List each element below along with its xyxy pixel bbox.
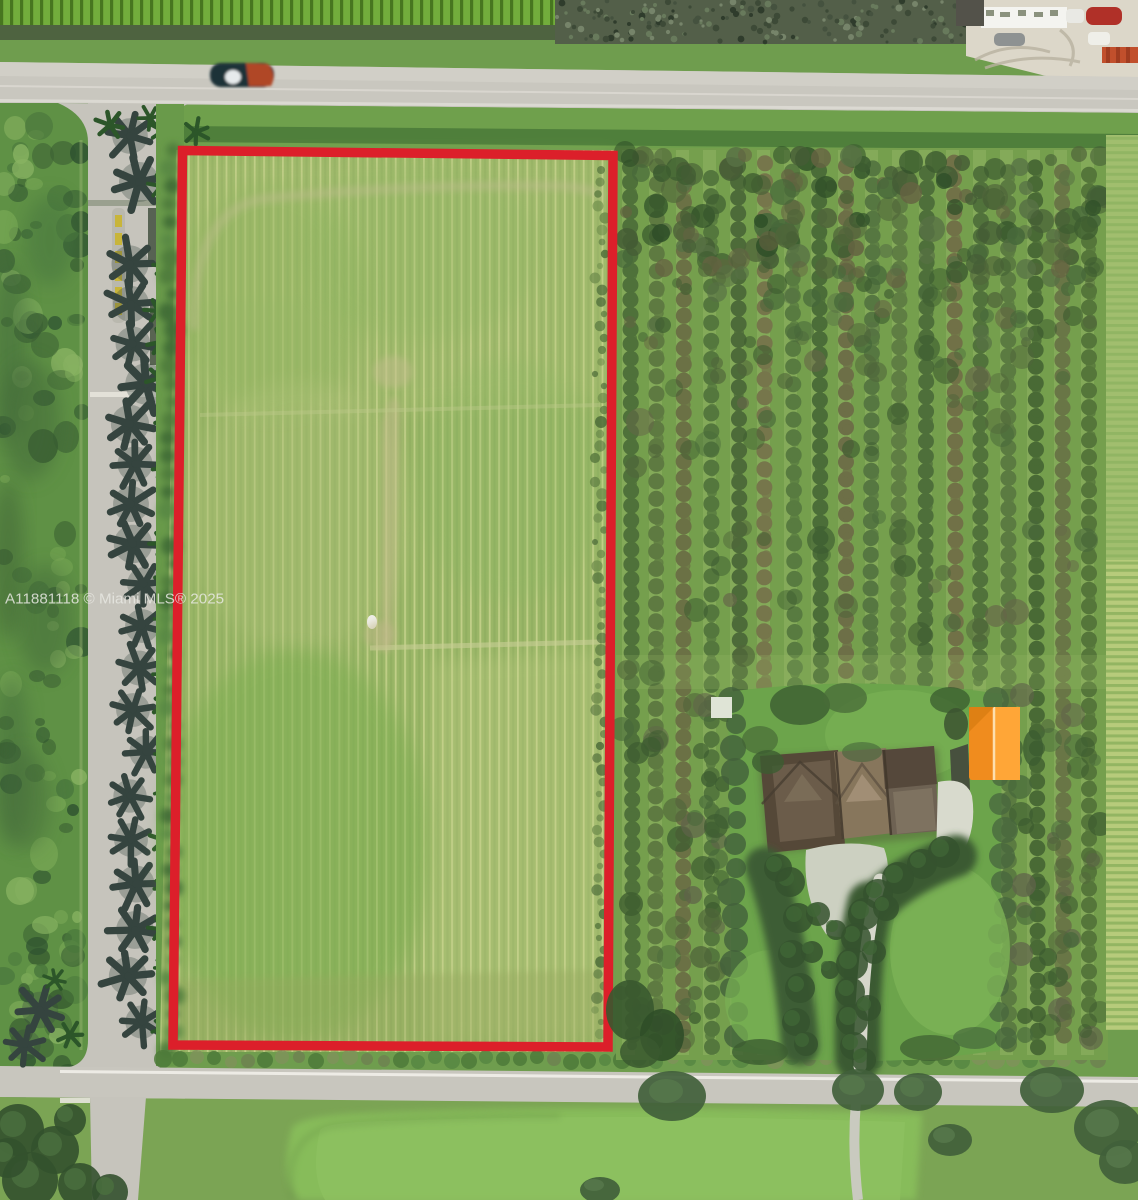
svg-text:A11881118 © Miami MLS® 2025: A11881118 © Miami MLS® 2025	[5, 591, 224, 608]
